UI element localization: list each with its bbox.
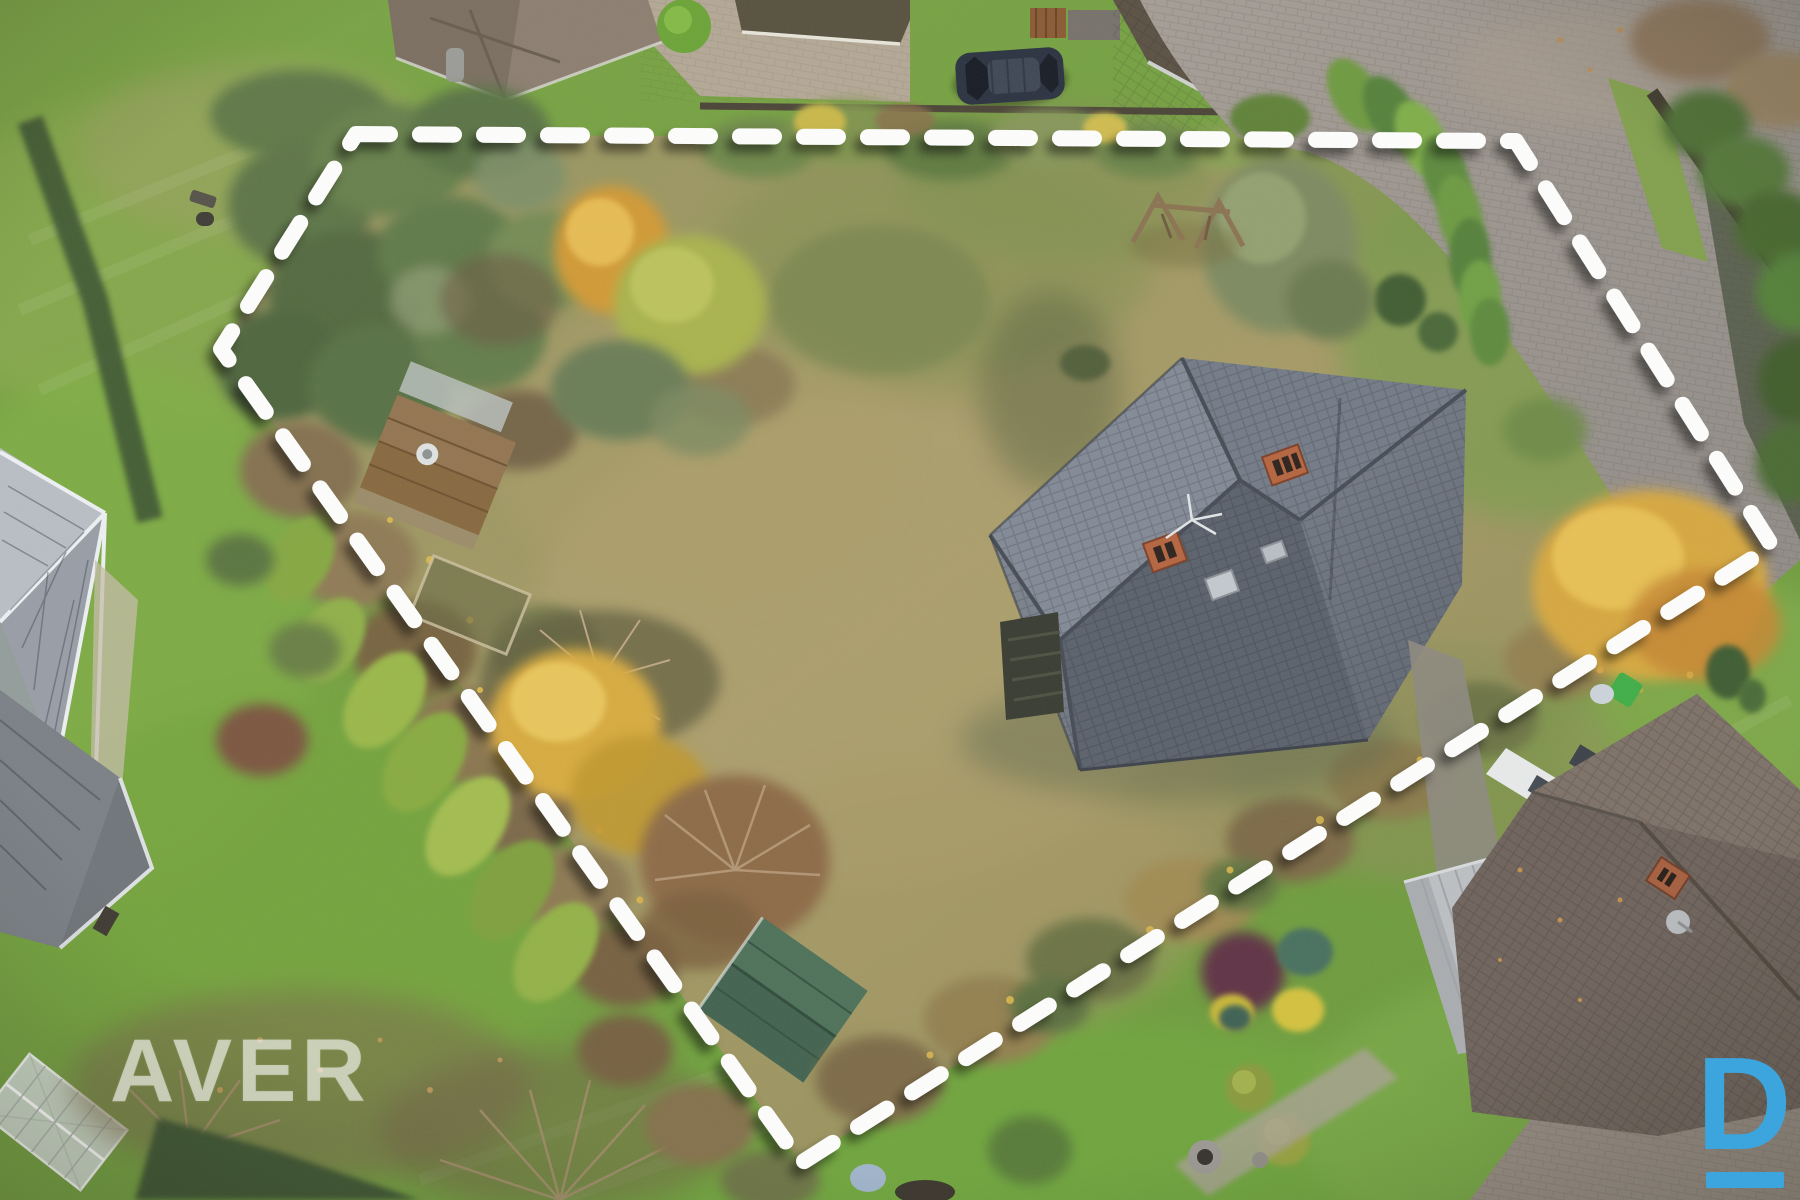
brand-logo-underline <box>1706 1172 1784 1188</box>
brand-logo-letter: D <box>1696 1038 1792 1170</box>
aerial-photo: AVER D <box>0 0 1800 1200</box>
aver-watermark: AVER <box>110 1026 371 1115</box>
